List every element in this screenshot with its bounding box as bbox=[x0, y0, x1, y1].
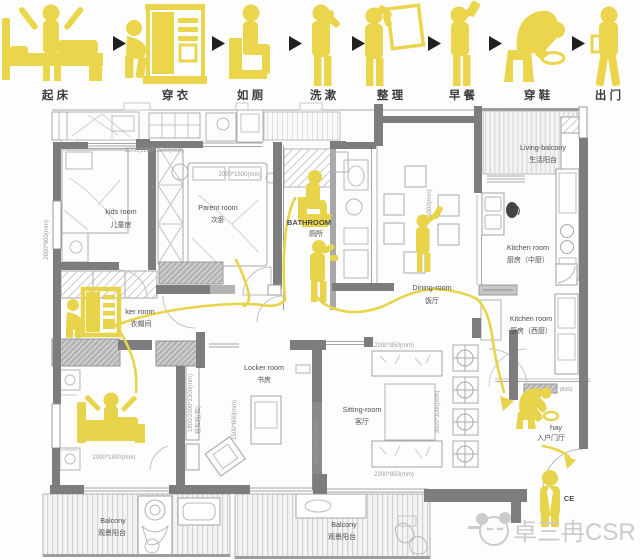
svg-text:3000*3000(mm): 3000*3000(mm) bbox=[435, 390, 441, 433]
svg-text:入户门厅: 入户门厅 bbox=[537, 433, 565, 442]
svg-text:2200*850(mm): 2200*850(mm) bbox=[374, 343, 414, 349]
svg-text:卓三冉CSR: 卓三冉CSR bbox=[513, 519, 636, 546]
svg-text:ker room: ker room bbox=[125, 307, 155, 316]
svg-text:衣帽间: 衣帽间 bbox=[131, 319, 152, 328]
svg-text:2000*1600(mm): 2000*1600(mm) bbox=[218, 172, 261, 178]
svg-text:厕所: 厕所 bbox=[309, 229, 323, 238]
svg-text:2200*850(mm): 2200*850(mm) bbox=[374, 472, 414, 478]
svg-text:起 床: 起 床 bbox=[41, 88, 69, 102]
svg-text:厨房（西厨）: 厨房（西厨） bbox=[510, 326, 552, 335]
svg-text:Balcony: Balcony bbox=[100, 516, 126, 525]
svg-text:Living-balcony: Living-balcony bbox=[520, 143, 566, 152]
svg-text:1800/2000*2300(mm): 1800/2000*2300(mm) bbox=[188, 374, 194, 432]
svg-text:Kitchen room: Kitchen room bbox=[507, 243, 549, 252]
svg-text:Balcony: Balcony bbox=[331, 520, 357, 529]
svg-text:1500*600(mm): 1500*600(mm) bbox=[232, 400, 238, 440]
svg-text:书房: 书房 bbox=[257, 375, 271, 384]
svg-text:观景阳台: 观景阳台 bbox=[98, 528, 126, 537]
svg-text:厨房（中厨）: 厨房（中厨） bbox=[507, 255, 549, 264]
svg-text:次卧: 次卧 bbox=[211, 215, 225, 224]
svg-text:客厅: 客厅 bbox=[355, 417, 369, 426]
svg-text:儿童房: 儿童房 bbox=[111, 220, 132, 229]
svg-text:早 餐: 早 餐 bbox=[449, 88, 476, 102]
svg-text:BATHROOM: BATHROOM bbox=[287, 218, 331, 227]
svg-text:(800): (800) bbox=[560, 387, 573, 393]
svg-text:生活阳台: 生活阳台 bbox=[529, 155, 557, 164]
svg-text:3000*2400(mm): 3000*2400(mm) bbox=[314, 420, 320, 463]
svg-text:观景阳台: 观景阳台 bbox=[328, 532, 356, 541]
svg-text:鞋柜鞋(柜): 鞋柜鞋(柜) bbox=[194, 406, 202, 434]
svg-text:2000*1800(mm): 2000*1800(mm) bbox=[92, 455, 135, 461]
svg-text:穿 鞋: 穿 鞋 bbox=[524, 88, 551, 102]
svg-text:整 理: 整 理 bbox=[376, 88, 404, 102]
svg-text:kids room: kids room bbox=[105, 207, 136, 216]
svg-text:Locker room: Locker room bbox=[244, 363, 284, 372]
svg-text:饭厅: 饭厅 bbox=[425, 296, 439, 305]
svg-text:Parent room: Parent room bbox=[198, 203, 238, 212]
svg-text:CE: CE bbox=[564, 494, 574, 503]
svg-text:如 厕: 如 厕 bbox=[237, 88, 264, 102]
svg-text:Kitchen room: Kitchen room bbox=[510, 314, 552, 323]
svg-text:1000(mm): 1000(mm) bbox=[427, 189, 433, 216]
svg-text:穿 衣: 穿 衣 bbox=[162, 88, 189, 102]
svg-text:Dining-room: Dining-room bbox=[412, 283, 451, 292]
svg-text:Sitting-room: Sitting-room bbox=[343, 405, 382, 414]
svg-text:hay: hay bbox=[550, 423, 562, 432]
svg-text:2000(1200*1500(mm): 2000(1200*1500(mm) bbox=[125, 148, 183, 154]
svg-text:出 门: 出 门 bbox=[595, 88, 621, 102]
svg-text:洗 漱: 洗 漱 bbox=[310, 88, 337, 102]
svg-text:2600*900(mm): 2600*900(mm) bbox=[44, 220, 50, 260]
